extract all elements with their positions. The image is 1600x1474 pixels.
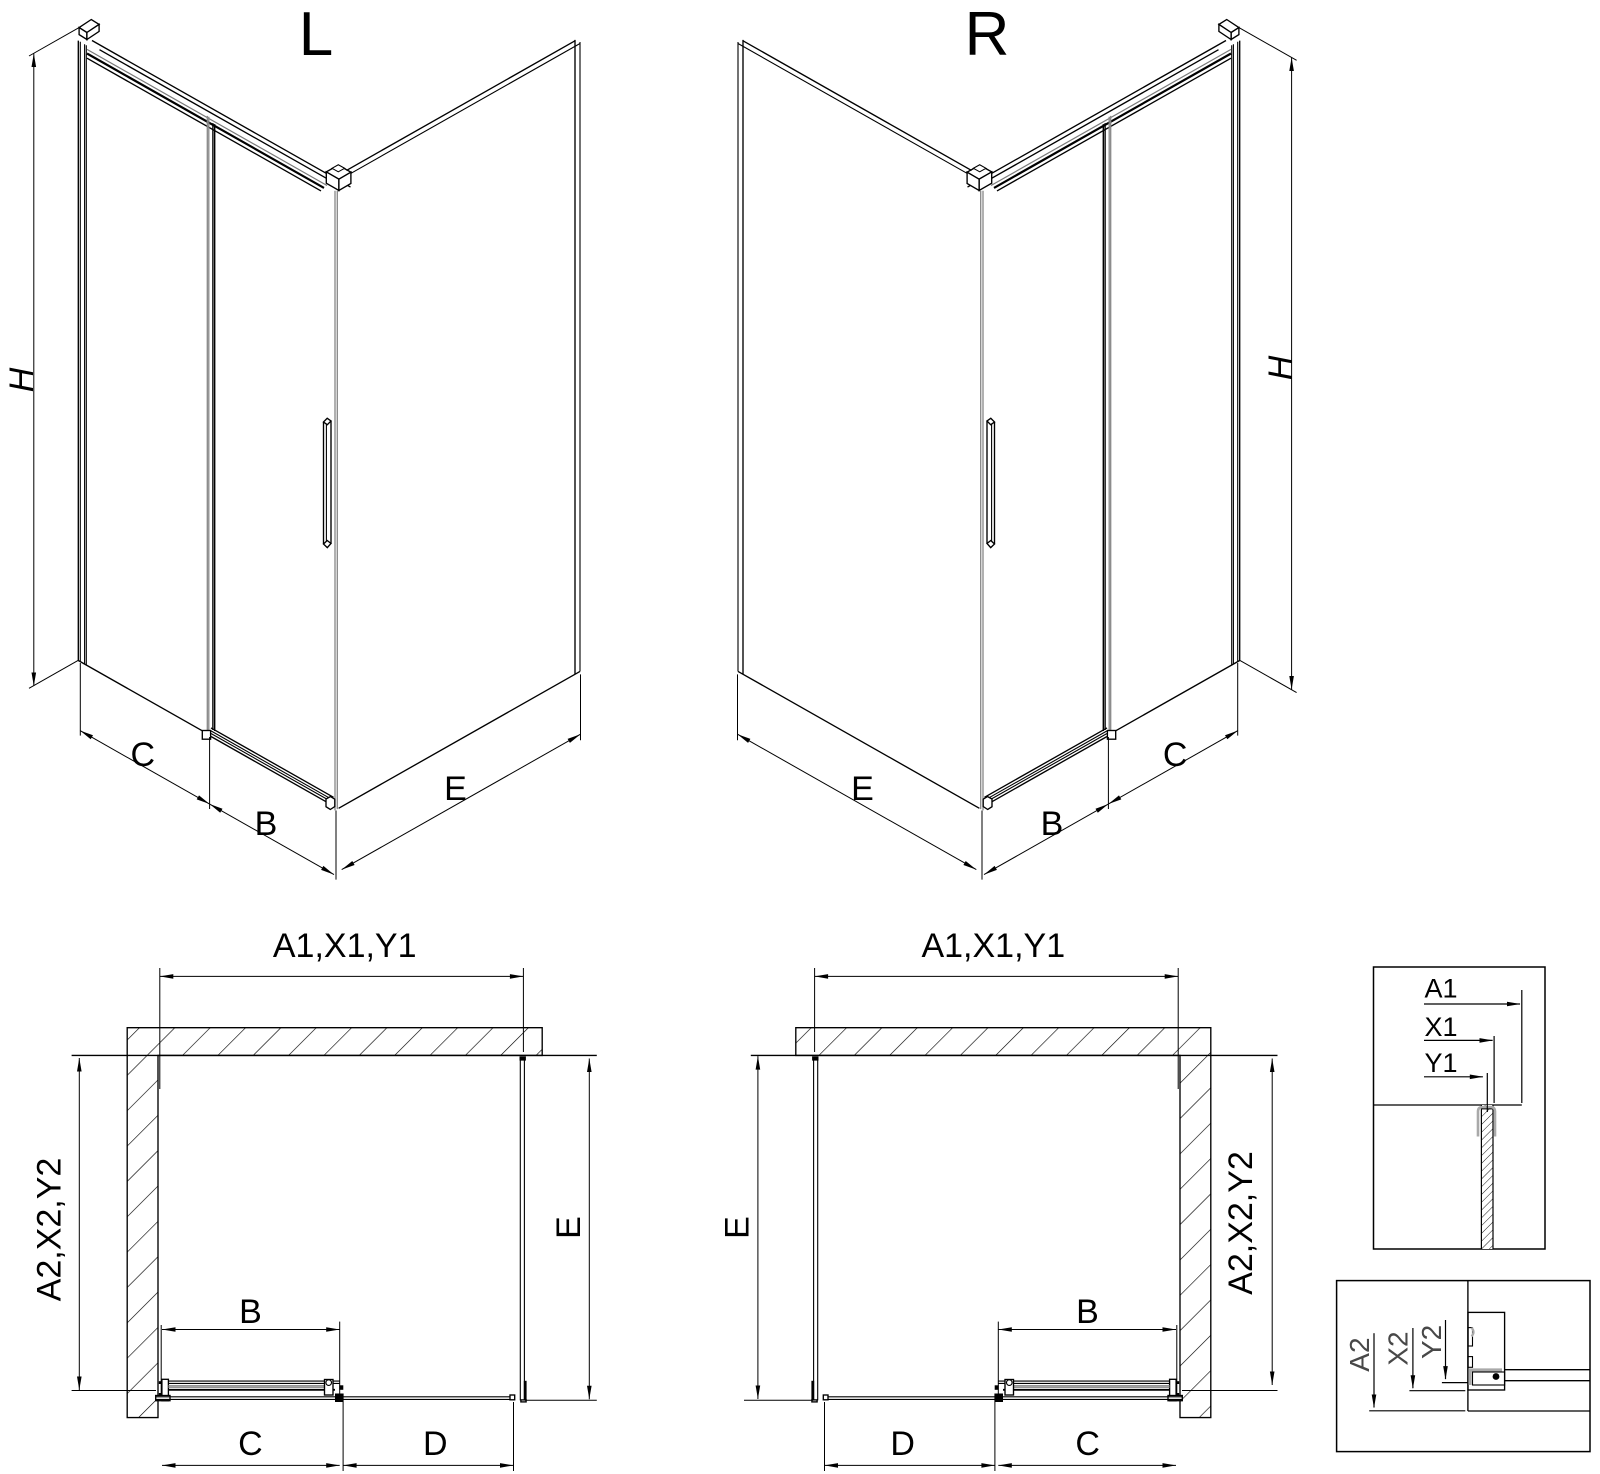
svg-text:A2,X2,Y2: A2,X2,Y2 [31, 1158, 69, 1302]
svg-text:D: D [890, 1425, 915, 1463]
svg-text:L: L [299, 0, 333, 69]
svg-text:B: B [1041, 805, 1064, 843]
svg-text:Y2: Y2 [1416, 1325, 1447, 1359]
svg-text:B: B [239, 1293, 262, 1331]
svg-text:E: E [851, 770, 874, 808]
svg-text:A1,X1,Y1: A1,X1,Y1 [273, 927, 417, 965]
svg-text:C: C [1075, 1425, 1100, 1463]
svg-text:A2,X2,Y2: A2,X2,Y2 [1222, 1151, 1260, 1295]
svg-text:X2: X2 [1382, 1331, 1413, 1365]
svg-text:X1: X1 [1424, 1012, 1457, 1042]
svg-text:C: C [131, 736, 156, 774]
svg-text:C: C [1163, 736, 1188, 774]
svg-text:H: H [3, 367, 41, 392]
svg-text:H: H [1262, 355, 1300, 380]
svg-text:A1: A1 [1424, 973, 1457, 1003]
svg-text:E: E [444, 770, 467, 808]
svg-text:Y1: Y1 [1424, 1048, 1457, 1078]
svg-text:D: D [423, 1425, 448, 1463]
svg-text:E: E [719, 1216, 757, 1239]
svg-text:B: B [255, 805, 278, 843]
svg-text:B: B [1076, 1293, 1099, 1331]
svg-text:C: C [238, 1425, 263, 1463]
svg-text:R: R [965, 0, 1010, 69]
svg-text:A2: A2 [1344, 1337, 1375, 1371]
svg-text:E: E [550, 1216, 588, 1239]
svg-text:A1,X1,Y1: A1,X1,Y1 [921, 927, 1065, 965]
